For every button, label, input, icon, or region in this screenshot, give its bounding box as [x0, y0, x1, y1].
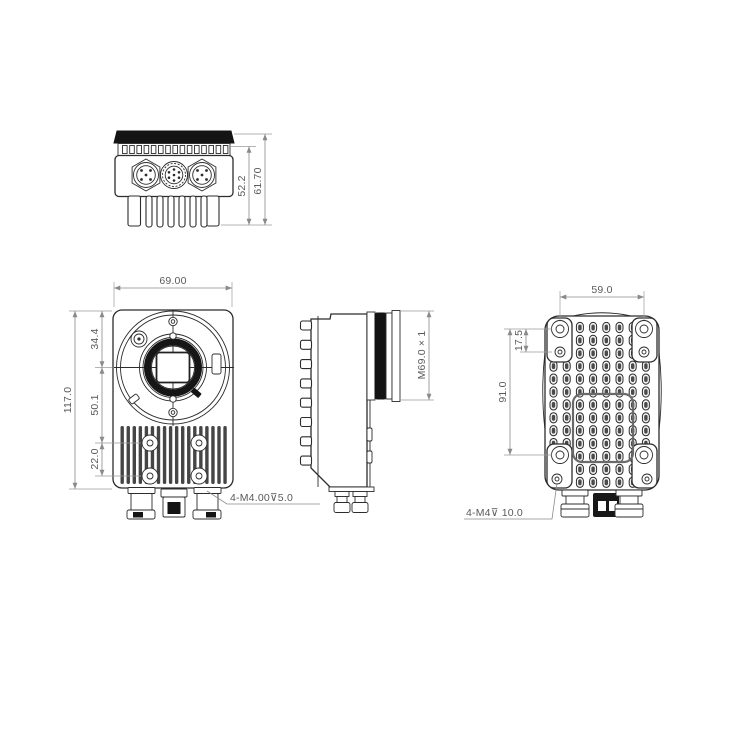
- dim-overall-height-label: 61.70: [252, 167, 264, 194]
- front-view: 69.00: [62, 275, 320, 519]
- dim-screw-offset-label: 17.5: [513, 330, 525, 351]
- side-view: M69.0 × 1: [301, 311, 435, 513]
- side-bottom-connectors: [329, 487, 374, 513]
- lens-cap-bar: [114, 131, 234, 143]
- front-thread-note: 4-M4.00⊽5.0: [207, 491, 320, 504]
- dim-lens-thread-label: M69.0 × 1: [416, 331, 428, 380]
- mount-tab-bottom-left: [547, 444, 572, 488]
- dim-screw-spacing-label: 22.0: [89, 448, 101, 469]
- rear-thread-note: 4-M4⊽ 10.0: [464, 483, 557, 519]
- front-bottom-connectors: [127, 488, 221, 520]
- mount-tab-top-right: [632, 318, 657, 362]
- dim-body-height-label: 52.2: [236, 175, 248, 196]
- dim-width-label: 69.00: [159, 275, 186, 287]
- heatsink-fins: [128, 196, 219, 227]
- rear-thread-note-label: 4-M4⊽ 10.0: [466, 507, 523, 519]
- front-width-dimension: 69.00: [114, 275, 232, 307]
- dim-top-to-center-label: 34.4: [89, 328, 101, 349]
- rear-bottom-connectors: [561, 490, 643, 517]
- vent-teeth-row: [123, 146, 228, 154]
- camera-dimension-drawing: 52.2 61.70 69.00: [0, 0, 750, 750]
- lens-thread-dimension: M69.0 × 1: [401, 311, 434, 400]
- mount-tab-bottom-right: [632, 444, 657, 488]
- bottom-view: 52.2 61.70: [114, 131, 272, 227]
- drawing-canvas: 52.2 61.70 69.00: [0, 0, 750, 750]
- sensor-window: [157, 353, 190, 383]
- lens-barrel-side: [367, 311, 400, 402]
- mount-tab-top-left: [547, 318, 572, 362]
- side-heatsink-fins: [301, 321, 312, 465]
- m12-connector-middle: [161, 162, 188, 189]
- dim-overall-body-height-label: 117.0: [62, 387, 74, 414]
- dim-center-to-screws-label: 50.1: [89, 394, 101, 415]
- dim-rear-width-label: 59.0: [591, 284, 612, 296]
- dim-screw-span-label: 91.0: [497, 381, 509, 402]
- front-thread-note-label: 4-M4.00⊽5.0: [230, 492, 293, 504]
- rear-view: 59.0 17.5 91.0 4-M4⊽ 10.0: [464, 284, 661, 519]
- status-led: [131, 331, 147, 347]
